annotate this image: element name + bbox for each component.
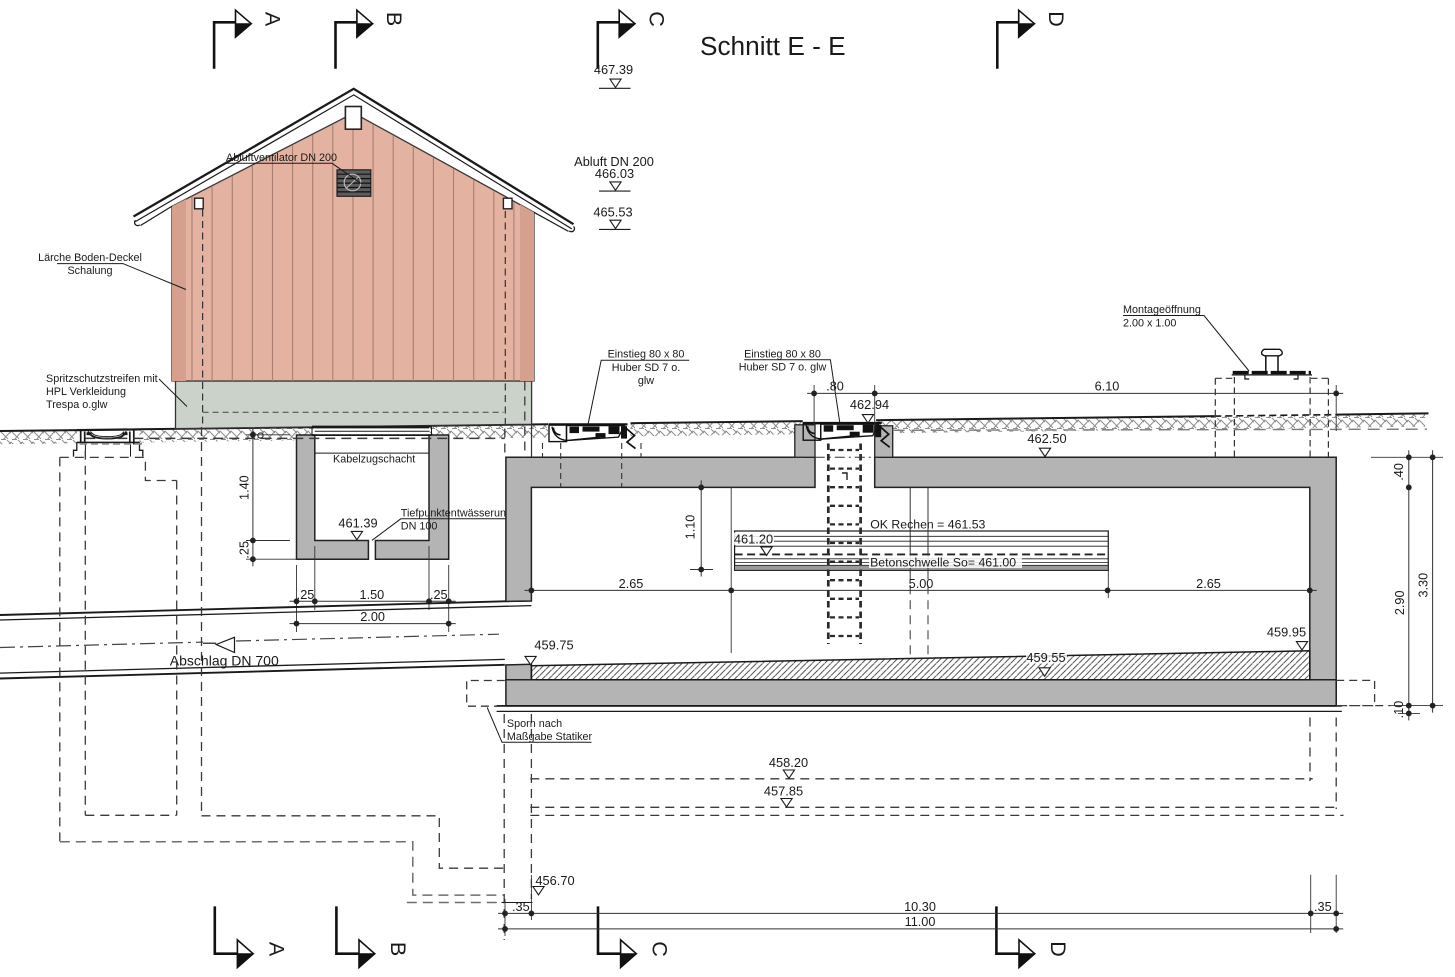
svg-text:2.00: 2.00 bbox=[360, 610, 385, 624]
svg-text:D: D bbox=[1046, 941, 1070, 957]
svg-text:HPL Verkleidung: HPL Verkleidung bbox=[46, 386, 126, 398]
svg-text:Schnitt E - E: Schnitt E - E bbox=[700, 31, 846, 61]
svg-text:461.39: 461.39 bbox=[338, 516, 377, 531]
svg-text:10.30: 10.30 bbox=[904, 900, 936, 914]
svg-text:Schalung: Schalung bbox=[67, 265, 112, 277]
svg-text:Maßgabe Statiker: Maßgabe Statiker bbox=[507, 731, 593, 743]
svg-text:466.03: 466.03 bbox=[595, 166, 634, 181]
svg-text:2.90: 2.90 bbox=[1393, 590, 1407, 615]
svg-text:6.10: 6.10 bbox=[1095, 380, 1120, 394]
svg-text:Abluftventilator DN 200: Abluftventilator DN 200 bbox=[226, 152, 337, 164]
svg-text:459.95: 459.95 bbox=[1267, 625, 1306, 640]
svg-text:A: A bbox=[261, 12, 285, 27]
svg-text:.35: .35 bbox=[512, 900, 530, 914]
svg-text:2.00 x 1.00: 2.00 x 1.00 bbox=[1123, 318, 1176, 330]
svg-text:Huber SD 7 o.: Huber SD 7 o. bbox=[612, 362, 680, 374]
svg-text:C: C bbox=[644, 11, 668, 27]
svg-text:3.30: 3.30 bbox=[1416, 573, 1430, 598]
svg-text:.25: .25 bbox=[297, 588, 315, 602]
svg-text:459.75: 459.75 bbox=[534, 637, 573, 652]
svg-text:1.50: 1.50 bbox=[360, 588, 385, 602]
svg-text:B: B bbox=[382, 12, 406, 26]
svg-text:glw: glw bbox=[638, 375, 654, 387]
svg-text:DN 100: DN 100 bbox=[401, 521, 438, 533]
svg-text:456.70: 456.70 bbox=[535, 873, 574, 888]
svg-text:462.50: 462.50 bbox=[1027, 431, 1066, 446]
svg-text:1.40: 1.40 bbox=[238, 475, 252, 500]
svg-text:2.65: 2.65 bbox=[1196, 577, 1221, 591]
svg-text:11.00: 11.00 bbox=[905, 915, 936, 929]
svg-text:Montageöffnung: Montageöffnung bbox=[1123, 304, 1201, 316]
svg-text:458.20: 458.20 bbox=[769, 755, 808, 770]
svg-text:Einstieg 80 x 80: Einstieg 80 x 80 bbox=[744, 349, 821, 361]
svg-text:OK Rechen = 461.53: OK Rechen = 461.53 bbox=[870, 517, 985, 531]
svg-text:Betonschwelle So= 461.00: Betonschwelle So= 461.00 bbox=[870, 555, 1016, 569]
svg-text:1.10: 1.10 bbox=[684, 515, 698, 540]
svg-text:.25: .25 bbox=[430, 588, 448, 602]
svg-text:457.85: 457.85 bbox=[764, 784, 803, 799]
svg-text:Kabelzugschacht: Kabelzugschacht bbox=[333, 454, 415, 466]
svg-text:5.00: 5.00 bbox=[909, 577, 934, 591]
svg-text:Lärche Boden-Deckel: Lärche Boden-Deckel bbox=[38, 252, 142, 264]
svg-text:.10: .10 bbox=[1392, 701, 1406, 719]
svg-text:Einstieg 80 x 80: Einstieg 80 x 80 bbox=[608, 349, 685, 361]
svg-text:B: B bbox=[386, 942, 410, 956]
svg-text:Tiefpunktentwässerung: Tiefpunktentwässerung bbox=[401, 508, 512, 520]
svg-text:Spritzschutzstreifen mit: Spritzschutzstreifen mit bbox=[46, 373, 158, 385]
svg-text:C: C bbox=[648, 941, 672, 957]
svg-text:461.20: 461.20 bbox=[734, 531, 773, 546]
svg-text:Huber SD 7 o. glw: Huber SD 7 o. glw bbox=[739, 362, 827, 374]
svg-text:2.65: 2.65 bbox=[619, 577, 644, 591]
svg-text:.40: .40 bbox=[1392, 463, 1406, 481]
svg-text:467.39: 467.39 bbox=[594, 62, 633, 77]
svg-text:.80: .80 bbox=[826, 380, 844, 394]
svg-text:Trespa o.glw: Trespa o.glw bbox=[46, 399, 108, 411]
svg-text:A: A bbox=[264, 942, 288, 957]
svg-text:465.53: 465.53 bbox=[593, 205, 632, 220]
svg-text:459.55: 459.55 bbox=[1026, 650, 1065, 665]
svg-text:.25: .25 bbox=[238, 541, 252, 559]
svg-text:Abschlag DN 700: Abschlag DN 700 bbox=[170, 653, 279, 669]
svg-text:.35: .35 bbox=[1314, 900, 1332, 914]
svg-text:Sporn nach: Sporn nach bbox=[507, 718, 562, 730]
svg-text:D: D bbox=[1044, 11, 1068, 27]
svg-text:462.94: 462.94 bbox=[850, 397, 889, 412]
